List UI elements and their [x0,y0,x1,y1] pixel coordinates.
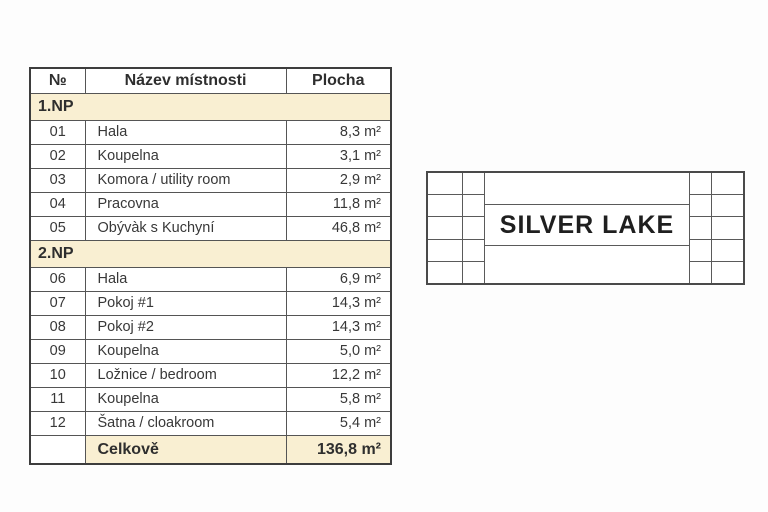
row-number-cell: 09 [30,340,85,364]
room-name-cell: Koupelna [85,145,286,169]
total-empty-cell [30,436,85,465]
room-name-cell: Šatna / cloakroom [85,412,286,436]
area-cell: 2,9 m² [286,169,391,193]
logo-grid-cell [712,195,743,217]
logo-grid-cell [712,217,743,239]
logo-grid-cell [428,217,462,239]
table-row: 01 Hala 8,3 m² [30,121,391,145]
row-number-cell: 02 [30,145,85,169]
table-row: 02 Koupelna 3,1 m² [30,145,391,169]
table-row: 05 Obývàk s Kuchyní 46,8 m² [30,217,391,241]
logo-grid-cell [428,173,462,195]
logo-bottom-band [485,246,689,283]
section-row-2np: 2.NP [30,241,391,268]
row-number-cell: 06 [30,268,85,292]
table-row: 06 Hala 6,9 m² [30,268,391,292]
table-row: 03 Komora / utility room 2,9 m² [30,169,391,193]
row-number-cell: 01 [30,121,85,145]
logo-left-outer-column [428,173,463,283]
table-row: 04 Pracovna 11,8 m² [30,193,391,217]
logo-grid-cell [428,195,462,217]
room-name-cell: Koupelna [85,388,286,412]
row-number-cell: 07 [30,292,85,316]
table-row: 07 Pokoj #1 14,3 m² [30,292,391,316]
room-name-cell: Hala [85,121,286,145]
table-header-row: № Název místnosti Plocha [30,68,391,94]
logo-title: SILVER LAKE [500,211,674,240]
room-name-cell: Pokoj #1 [85,292,286,316]
table-row: 11 Koupelna 5,8 m² [30,388,391,412]
header-number: № [30,68,85,94]
logo-right-outer-column [711,173,743,283]
logo-grid-cell [463,173,484,195]
area-cell: 5,4 m² [286,412,391,436]
total-label: Celkově [85,436,286,465]
logo-right-inner-column [689,173,711,283]
row-number-cell: 05 [30,217,85,241]
row-number-cell: 03 [30,169,85,193]
room-name-cell: Hala [85,268,286,292]
logo-grid-cell [690,262,711,283]
page: № Název místnosti Plocha 1.NP 01 Hala 8,… [0,0,768,512]
row-number-cell: 12 [30,412,85,436]
silver-lake-logo: SILVER LAKE [426,171,745,285]
area-cell: 6,9 m² [286,268,391,292]
table-row: 09 Koupelna 5,0 m² [30,340,391,364]
room-name-cell: Pracovna [85,193,286,217]
logo-grid-cell [463,262,484,283]
table-row: 12 Šatna / cloakroom 5,4 m² [30,412,391,436]
area-cell: 46,8 m² [286,217,391,241]
section-label: 1.NP [30,94,391,121]
row-number-cell: 04 [30,193,85,217]
logo-title-band: SILVER LAKE [485,204,689,246]
total-row: Celkově 136,8 m² [30,436,391,465]
area-cell: 5,0 m² [286,340,391,364]
row-number-cell: 11 [30,388,85,412]
room-name-cell: Obývàk s Kuchyní [85,217,286,241]
section-label: 2.NP [30,241,391,268]
logo-grid-cell [712,240,743,262]
room-name-cell: Ložnice / bedroom [85,364,286,388]
logo-grid-cell [712,262,743,283]
logo-grid-cell [712,173,743,195]
logo-grid-cell [428,262,462,283]
logo-center-panel: SILVER LAKE [485,173,689,283]
area-cell: 12,2 m² [286,364,391,388]
logo-grid-cell [463,217,484,239]
logo-grid-cell [690,173,711,195]
room-name-cell: Koupelna [85,340,286,364]
room-name-cell: Komora / utility room [85,169,286,193]
logo-top-band [485,173,689,204]
section-row-1np: 1.NP [30,94,391,121]
header-area: Plocha [286,68,391,94]
logo-left-inner-column [463,173,485,283]
table-row: 10 Ložnice / bedroom 12,2 m² [30,364,391,388]
area-cell: 8,3 m² [286,121,391,145]
logo-grid-cell [690,240,711,262]
logo-grid-cell [690,195,711,217]
total-area: 136,8 m² [286,436,391,465]
room-area-table: № Název místnosti Plocha 1.NP 01 Hala 8,… [29,67,392,465]
room-name-cell: Pokoj #2 [85,316,286,340]
table-row: 08 Pokoj #2 14,3 m² [30,316,391,340]
area-cell: 14,3 m² [286,316,391,340]
area-cell: 3,1 m² [286,145,391,169]
area-cell: 14,3 m² [286,292,391,316]
area-cell: 11,8 m² [286,193,391,217]
area-cell: 5,8 m² [286,388,391,412]
logo-grid-cell [463,195,484,217]
logo-grid-cell [463,240,484,262]
row-number-cell: 08 [30,316,85,340]
logo-grid-cell [690,217,711,239]
header-room-name: Název místnosti [85,68,286,94]
logo-grid-cell [428,240,462,262]
row-number-cell: 10 [30,364,85,388]
